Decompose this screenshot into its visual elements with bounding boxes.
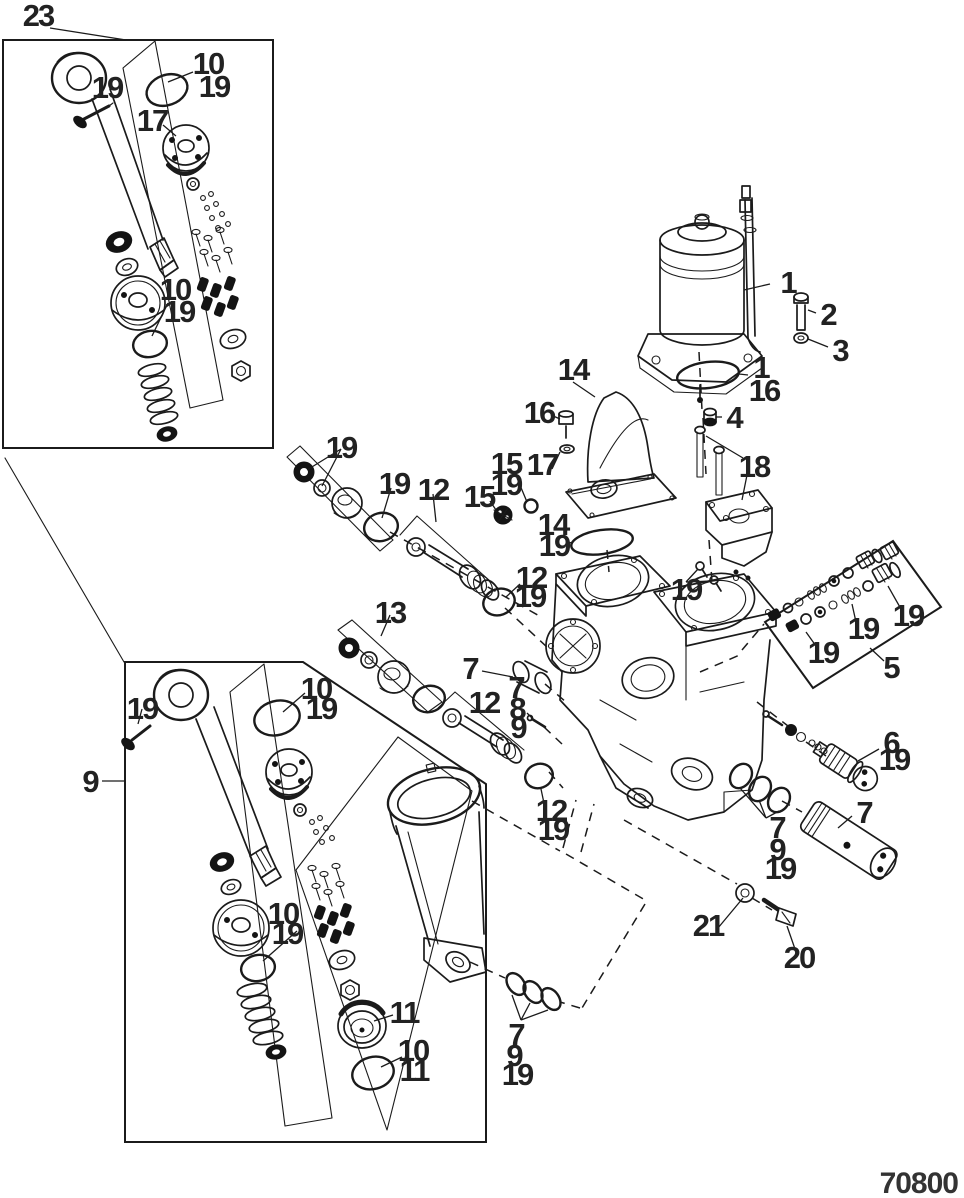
callout-4: 4 <box>726 400 744 435</box>
trim-cylinder-body <box>382 758 486 982</box>
callout-2: 2 <box>820 297 836 332</box>
o-ring-19-upper <box>131 328 170 361</box>
exploded-diagram: 23 19 10 19 17 10 19 1 2 3 1 16 4 18 14 … <box>0 0 964 1198</box>
callout-19: 19 <box>808 635 840 670</box>
callout-14: 14 <box>558 352 591 387</box>
callout-17: 17 <box>137 103 168 138</box>
callout-19: 19 <box>879 742 911 777</box>
callout-19: 19 <box>539 528 571 563</box>
shuttle-rod-12-upper <box>400 516 502 603</box>
reservoir-cover-14 <box>566 392 676 518</box>
callout-labels: 23 19 10 19 17 10 19 1 2 3 1 16 4 18 14 … <box>23 0 925 1092</box>
callout-12: 12 <box>418 472 449 507</box>
detail-box-23 <box>3 28 273 448</box>
callout-11: 11 <box>390 995 421 1030</box>
callout-7: 7 <box>856 795 872 830</box>
callout-16: 16 <box>524 395 556 430</box>
manifold-body <box>546 549 776 820</box>
callout-19: 19 <box>515 579 547 614</box>
callout-12: 12 <box>469 685 500 720</box>
drawing-number: 70800 <box>880 1167 959 1198</box>
piston-10-lower <box>213 900 269 956</box>
box-connector-line <box>5 458 124 662</box>
callout-18: 18 <box>739 449 771 484</box>
callout-19: 19 <box>379 466 411 501</box>
washer-and-nut-lower <box>327 947 359 1000</box>
rod-seal-stack-lower <box>208 849 243 897</box>
o-ring-12-19-lower <box>522 760 557 792</box>
callout-5: 5 <box>883 650 900 685</box>
callout-23: 23 <box>23 0 55 33</box>
callout-19: 19 <box>306 691 338 726</box>
motor-nut-3 <box>794 333 808 343</box>
spring-upper <box>137 361 179 443</box>
valve-cap-17 <box>163 125 209 174</box>
mounting-screw-upper <box>72 103 113 130</box>
callout-19: 19 <box>765 851 797 886</box>
callout-17: 17 <box>527 447 558 482</box>
washer-and-nut-upper <box>218 326 250 381</box>
o-ring-14-19 <box>570 526 635 558</box>
callout-19: 19 <box>893 598 925 633</box>
spring-lower <box>236 981 287 1061</box>
fill-washer-17 <box>560 445 574 453</box>
callout-19: 19 <box>538 812 570 847</box>
callout-19: 19 <box>199 69 231 104</box>
callout-9: 9 <box>82 764 99 799</box>
callout-15: 15 <box>464 479 496 514</box>
small-parts-trail-upper <box>187 178 230 230</box>
small-parts-trail-lower <box>294 804 334 844</box>
callout-19: 19 <box>92 70 124 105</box>
screw-set-lower <box>308 863 344 906</box>
bottom-o-rings-7-9-19 <box>503 970 565 1020</box>
callout-19: 19 <box>502 1057 534 1092</box>
valve-cap-lower <box>266 749 312 798</box>
fill-screw-16 <box>559 411 573 438</box>
callout-19: 19 <box>164 294 196 329</box>
callout-19: 19 <box>491 467 523 502</box>
callout-21: 21 <box>693 908 725 943</box>
o-ring-10-19-lower <box>250 696 303 741</box>
rod-seal-stack-upper <box>103 228 140 278</box>
parts-diagram-page: 23 19 10 19 17 10 19 1 2 3 1 16 4 18 14 … <box>0 0 964 1198</box>
callout-19: 19 <box>127 691 159 726</box>
valve-group-13 <box>338 620 448 716</box>
callout-13: 13 <box>375 595 407 630</box>
callout-11: 11 <box>400 1053 431 1088</box>
o-ring-1-16 <box>676 358 741 391</box>
callout-1: 1 <box>780 265 797 300</box>
motor-screw-2 <box>794 293 808 330</box>
callout-19: 19 <box>671 572 703 607</box>
callout-19: 19 <box>326 430 358 465</box>
coupler-4 <box>704 409 716 426</box>
trim-cylinder-rod-lower <box>154 669 281 886</box>
bolt-20 <box>764 900 796 926</box>
callout-16: 16 <box>749 373 781 408</box>
callout-19: 19 <box>848 611 880 646</box>
callout-9: 9 <box>510 710 527 745</box>
callout-3: 3 <box>832 333 849 368</box>
trim-ram-7 <box>798 800 901 884</box>
o-ring-10-11 <box>349 1052 398 1094</box>
pin-8-9 <box>528 716 546 728</box>
cylinder-end-cap-11 <box>338 1002 386 1048</box>
callout-19: 19 <box>272 916 304 951</box>
piston-10-upper <box>111 276 165 330</box>
callout-20: 20 <box>784 940 815 975</box>
callout-7: 7 <box>462 651 478 686</box>
filter-15 <box>494 506 512 524</box>
washer-21 <box>736 884 754 902</box>
